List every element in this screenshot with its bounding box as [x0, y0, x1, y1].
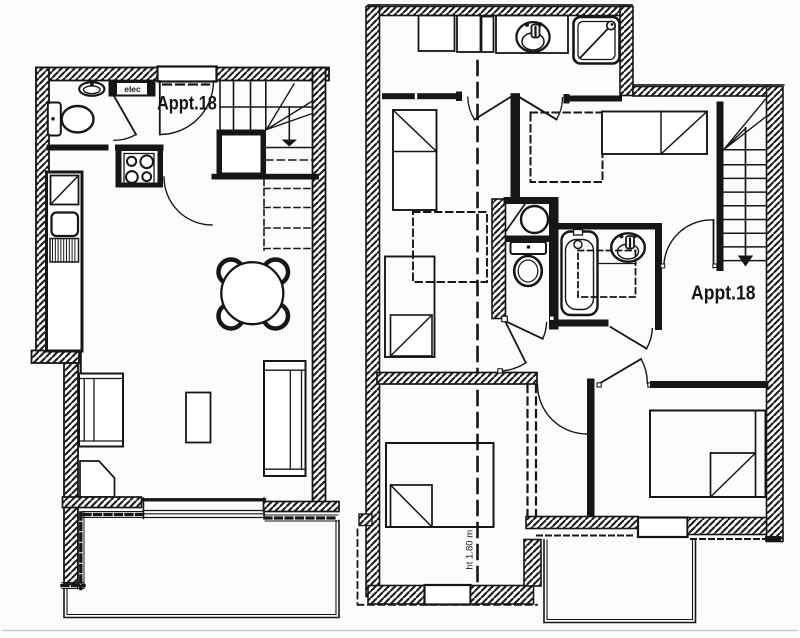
svg-text:ht 1.80 m: ht 1.80 m — [465, 530, 476, 570]
svg-text:Appt.18: Appt.18 — [691, 281, 756, 303]
svg-text:Appt.18: Appt.18 — [157, 92, 217, 113]
svg-text:elec: elec — [124, 84, 141, 94]
